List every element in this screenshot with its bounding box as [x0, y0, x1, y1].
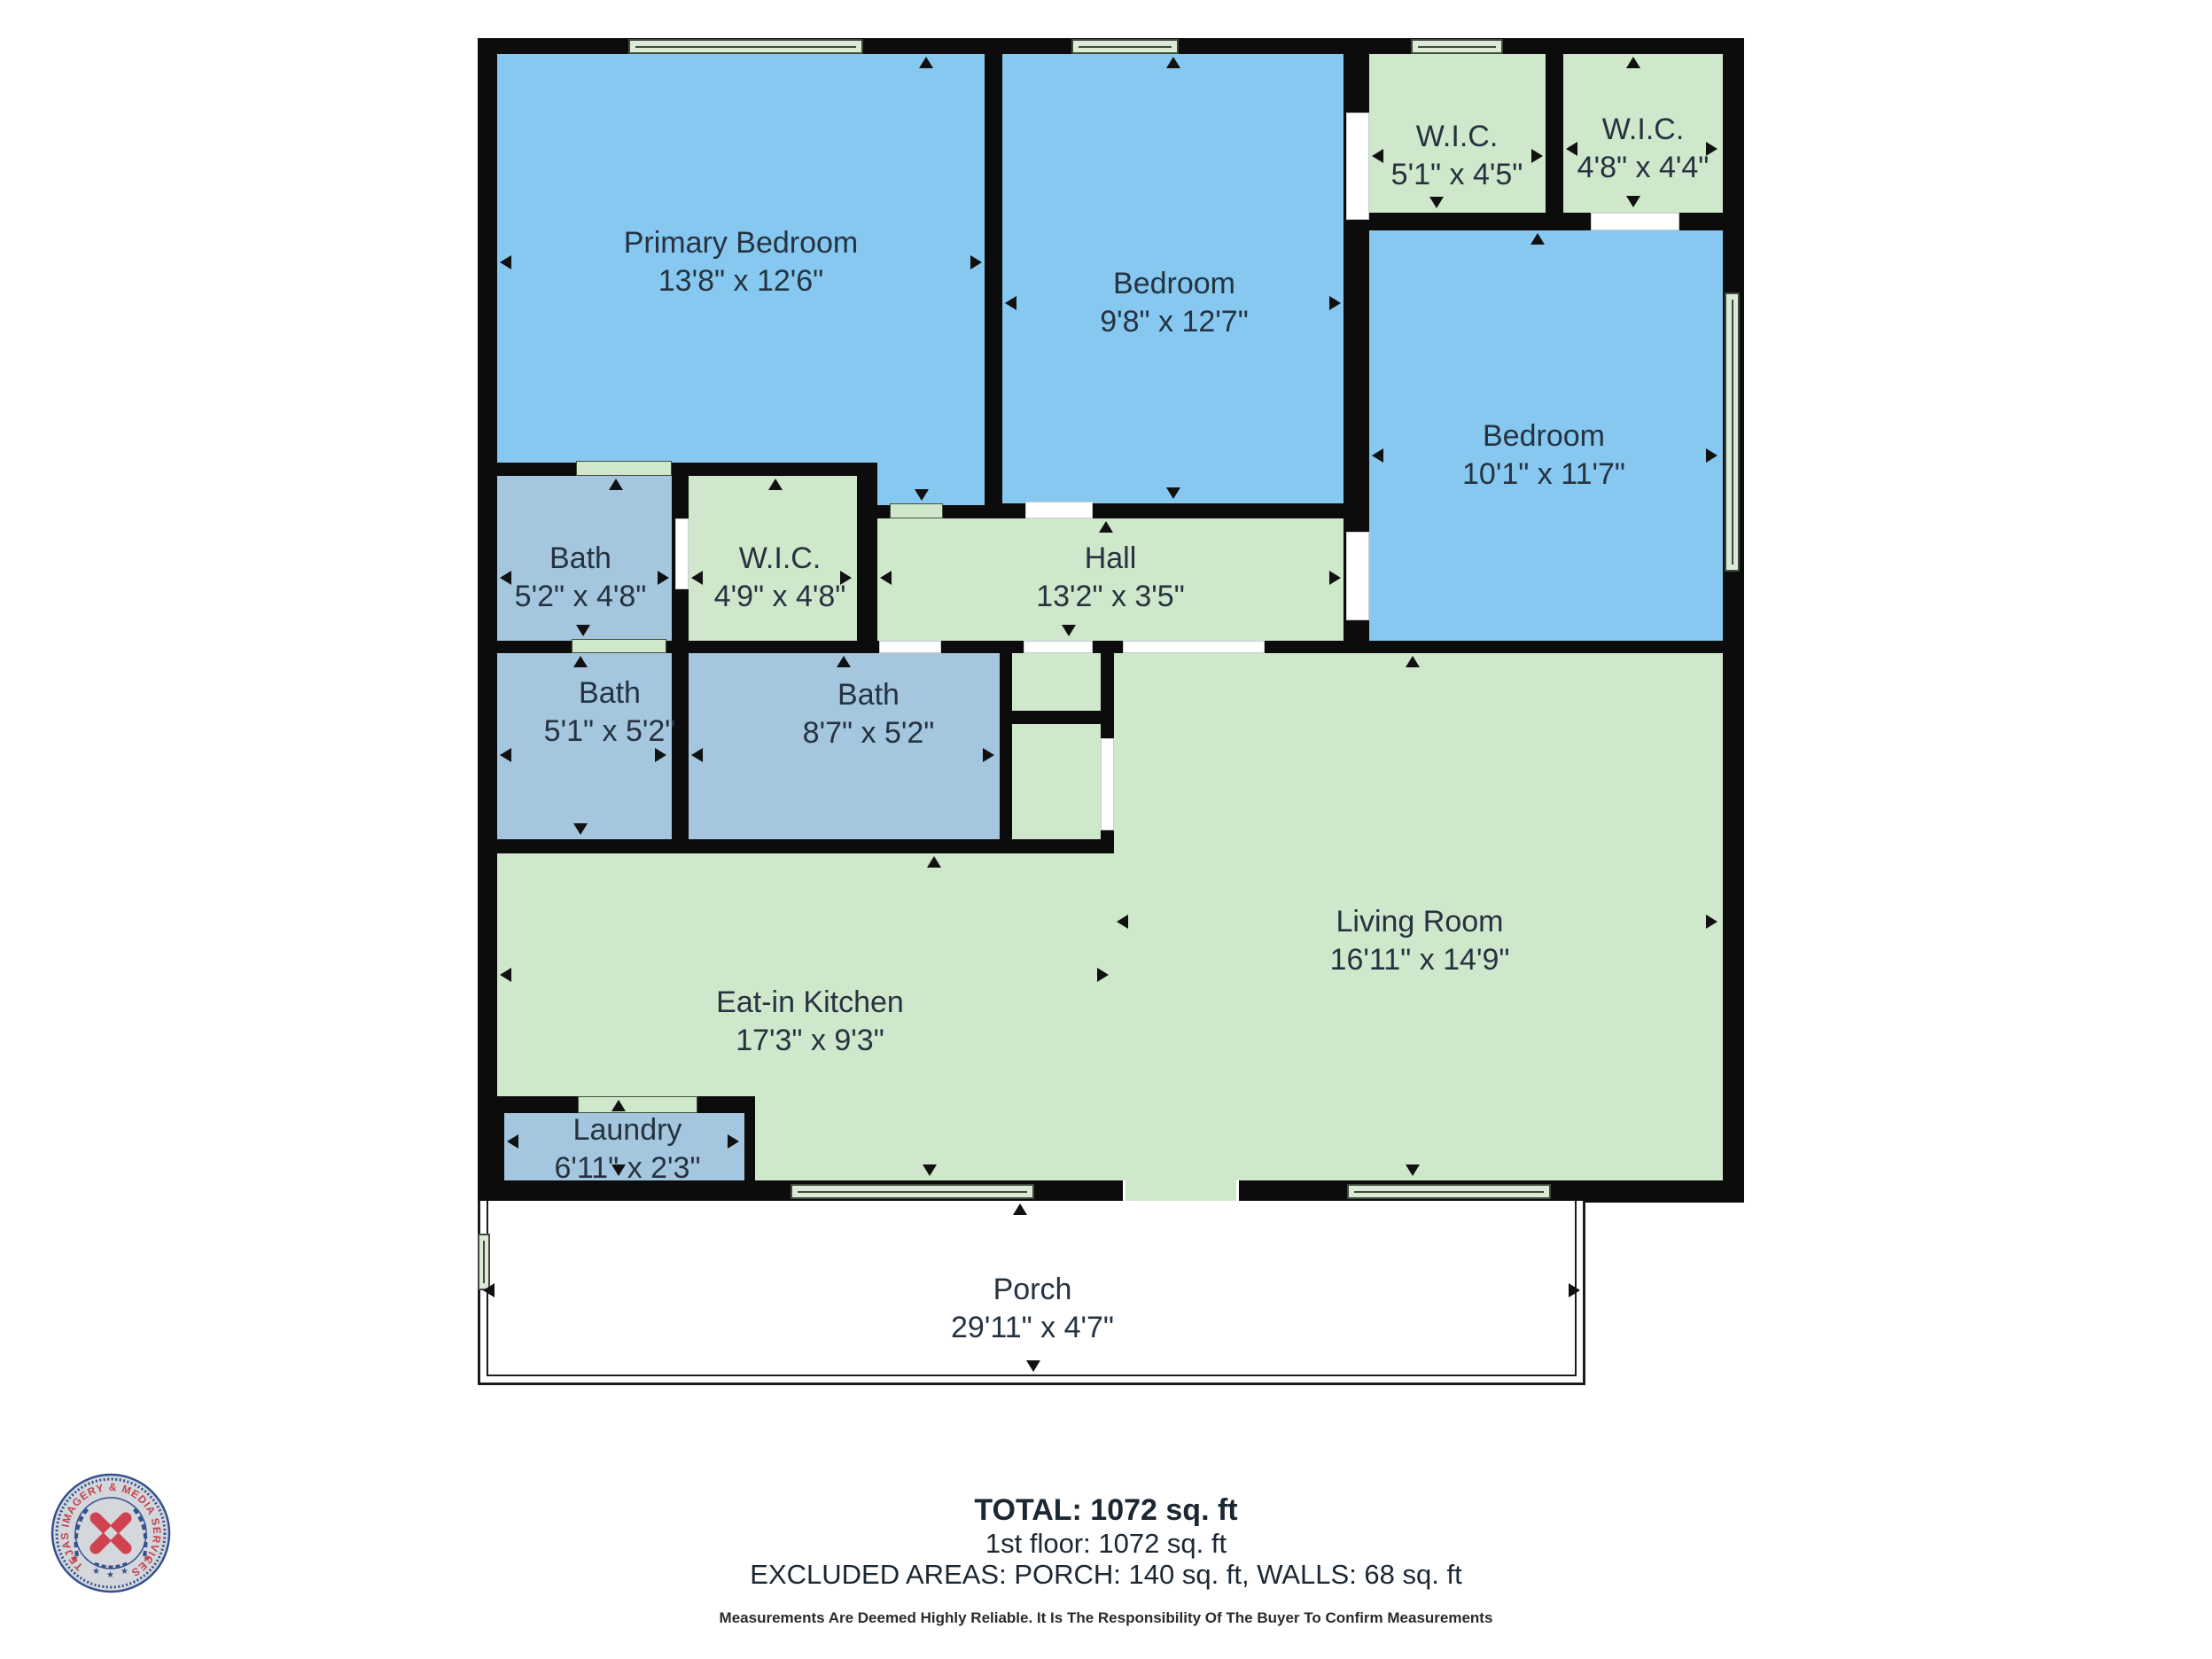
dimension-arrow: [500, 748, 511, 762]
total-area-text: TOTAL: 1072 sq. ft: [0, 1492, 2212, 1528]
door-opening: [890, 503, 943, 518]
dimension-arrow: [1406, 656, 1420, 667]
dimension-arrow: [691, 571, 703, 585]
room-name: Hall: [1036, 540, 1185, 578]
window: [791, 1184, 1034, 1199]
dimension-arrow: [1166, 487, 1180, 499]
room-name: Porch: [951, 1271, 1114, 1309]
room-dims: 8'7" x 5'2": [803, 714, 935, 752]
room-name: W.I.C.: [1577, 111, 1710, 149]
dimension-arrow: [483, 1283, 495, 1297]
dimension-arrow: [576, 625, 590, 636]
room-dims: 5'1" x 5'2": [544, 713, 676, 751]
room-name: Bath: [515, 540, 647, 578]
door-opening: [879, 641, 941, 653]
room-dims: 10'1" x 11'7": [1462, 456, 1625, 494]
door-opening: [1024, 641, 1093, 653]
seal-star: ★: [70, 1554, 79, 1564]
dimension-arrow: [728, 1134, 739, 1149]
dimension-arrow: [573, 823, 588, 835]
seal-star: ★: [121, 1567, 129, 1577]
room-dims: 16'11" x 14'9": [1330, 941, 1510, 979]
room-dims: 9'8" x 12'7": [1100, 303, 1249, 341]
dimension-arrow: [768, 479, 783, 490]
dimension-arrow: [1329, 571, 1341, 585]
room-floor-primary-bedroom-notch: [877, 463, 985, 505]
dimension-arrow: [837, 656, 851, 667]
dimension-arrow: [658, 571, 669, 585]
floor-plan-page: Primary Bedroom 13'8" x 12'6" Bedroom 9'…: [0, 0, 2212, 1659]
seal-star: ★: [92, 1567, 100, 1577]
dimension-arrow: [927, 856, 941, 868]
window: [1071, 39, 1179, 54]
seal-star: ★: [143, 1554, 152, 1564]
excluded-areas-text: EXCLUDED AREAS: PORCH: 140 sq. ft, WALLS…: [0, 1559, 2212, 1590]
dimension-arrow: [1706, 448, 1717, 463]
dimension-arrow: [500, 571, 511, 585]
dimension-arrow: [983, 748, 994, 762]
room-label-wic-3: W.I.C. 4'9" x 4'8": [714, 540, 846, 616]
dimension-arrow: [609, 479, 623, 490]
room-label-porch: Porch 29'11" x 4'7": [951, 1271, 1114, 1347]
company-seal-logo: TEJAS IMAGERY & MEDIA SERVICES ★ ★ ★ ★ ★: [49, 1471, 173, 1595]
room-dims: 4'9" x 4'8": [714, 578, 846, 616]
dimension-arrow: [1372, 149, 1383, 163]
room-name: W.I.C.: [714, 540, 846, 578]
dimension-arrow: [1706, 915, 1717, 929]
room-label-living-room: Living Room 16'11" x 14'9": [1330, 903, 1510, 979]
dimension-arrow: [507, 1134, 518, 1149]
room-name: Laundry: [554, 1111, 700, 1149]
room-label-bedroom-2: Bedroom 9'8" x 12'7": [1100, 265, 1249, 341]
window: [1411, 39, 1503, 54]
laundry-door-opening: [578, 1096, 697, 1113]
dimension-arrow: [880, 571, 892, 585]
room-dims: 5'2" x 4'8": [515, 578, 647, 616]
hall-nook-upper: [1012, 653, 1101, 711]
door-opening: [1101, 738, 1114, 830]
dimension-arrow: [691, 748, 703, 762]
dimension-arrow: [1097, 968, 1109, 982]
area-summary: TOTAL: 1072 sq. ft 1st floor: 1072 sq. f…: [0, 1492, 2212, 1627]
dimension-arrow: [915, 489, 929, 501]
dimension-arrow: [1626, 196, 1640, 207]
dimension-arrow: [611, 1100, 626, 1111]
room-label-bedroom-3: Bedroom 10'1" x 11'7": [1462, 417, 1625, 494]
window: [628, 39, 863, 54]
room-dims: 5'1" x 4'5": [1391, 156, 1523, 194]
window: [1725, 292, 1740, 572]
dimension-arrow: [500, 255, 511, 269]
dimension-arrow: [1062, 625, 1076, 636]
dimension-arrow: [1329, 296, 1341, 310]
room-label-bath-2: Bath 5'1" x 5'2": [544, 674, 676, 751]
dimension-arrow: [1566, 142, 1577, 156]
porch-entry-opening: [1123, 1180, 1239, 1201]
dimension-arrow: [1026, 1360, 1040, 1372]
room-dims: 29'11" x 4'7": [951, 1309, 1114, 1347]
hall-nook-lower: [1012, 724, 1101, 839]
room-dims: 17'3" x 9'3": [716, 1022, 904, 1060]
room-label-bath-3: Bath 8'7" x 5'2": [803, 676, 935, 752]
room-label-laundry: Laundry 6'11" x 2'3": [554, 1111, 700, 1188]
seal-star: ★: [106, 1570, 114, 1580]
room-name: Bath: [803, 676, 935, 714]
room-label-wic-1: W.I.C. 5'1" x 4'5": [1391, 118, 1523, 194]
door-opening: [1346, 532, 1369, 620]
room-label-wic-2: W.I.C. 4'8" x 4'4": [1577, 111, 1710, 187]
room-label-primary-bedroom: Primary Bedroom 13'8" x 12'6": [624, 224, 859, 300]
dimension-arrow: [970, 255, 982, 269]
room-name: Bath: [544, 674, 676, 713]
window: [1347, 1184, 1551, 1199]
room-name: Bedroom: [1462, 417, 1625, 456]
room-name: Living Room: [1330, 903, 1510, 941]
room-label-eat-in-kitchen: Eat-in Kitchen 17'3" x 9'3": [716, 984, 904, 1060]
dimension-arrow: [923, 1164, 937, 1176]
door-opening: [576, 461, 672, 476]
room-dims: 13'2" x 3'5": [1036, 578, 1185, 616]
first-floor-area-text: 1st floor: 1072 sq. ft: [0, 1528, 2212, 1559]
door-opening: [1123, 641, 1265, 653]
room-name: W.I.C.: [1391, 118, 1523, 156]
dimension-arrow: [573, 656, 588, 667]
dimension-arrow: [1166, 57, 1180, 68]
dimension-arrow: [1005, 296, 1016, 310]
dimension-arrow: [1429, 197, 1444, 208]
door-opening: [675, 518, 689, 589]
dimension-arrow: [1626, 57, 1640, 68]
room-dims: 4'8" x 4'4": [1577, 149, 1710, 187]
dimension-arrow: [1117, 915, 1128, 929]
door-opening: [1346, 113, 1369, 220]
room-dims: 6'11" x 2'3": [554, 1149, 700, 1188]
dimension-arrow: [1099, 521, 1113, 533]
room-label-hall: Hall 13'2" x 3'5": [1036, 540, 1185, 616]
room-name: Bedroom: [1100, 265, 1249, 303]
door-opening: [572, 639, 666, 653]
disclaimer-text: Measurements Are Deemed Highly Reliable.…: [0, 1609, 2212, 1627]
dimension-arrow: [919, 57, 933, 68]
dimension-arrow: [1013, 1203, 1027, 1215]
room-name: Eat-in Kitchen: [716, 984, 904, 1022]
room-dims: 13'8" x 12'6": [624, 262, 859, 300]
dimension-arrow: [1569, 1283, 1580, 1297]
dimension-arrow: [1406, 1164, 1420, 1176]
dimension-arrow: [1531, 149, 1543, 163]
porch-window: [478, 1234, 490, 1290]
room-name: Primary Bedroom: [624, 224, 859, 262]
dimension-arrow: [1530, 233, 1545, 245]
room-label-bath-1: Bath 5'2" x 4'8": [515, 540, 647, 616]
dimension-arrow: [500, 968, 511, 982]
door-opening: [1591, 213, 1679, 230]
door-opening: [1025, 502, 1093, 518]
dimension-arrow: [1372, 448, 1383, 463]
